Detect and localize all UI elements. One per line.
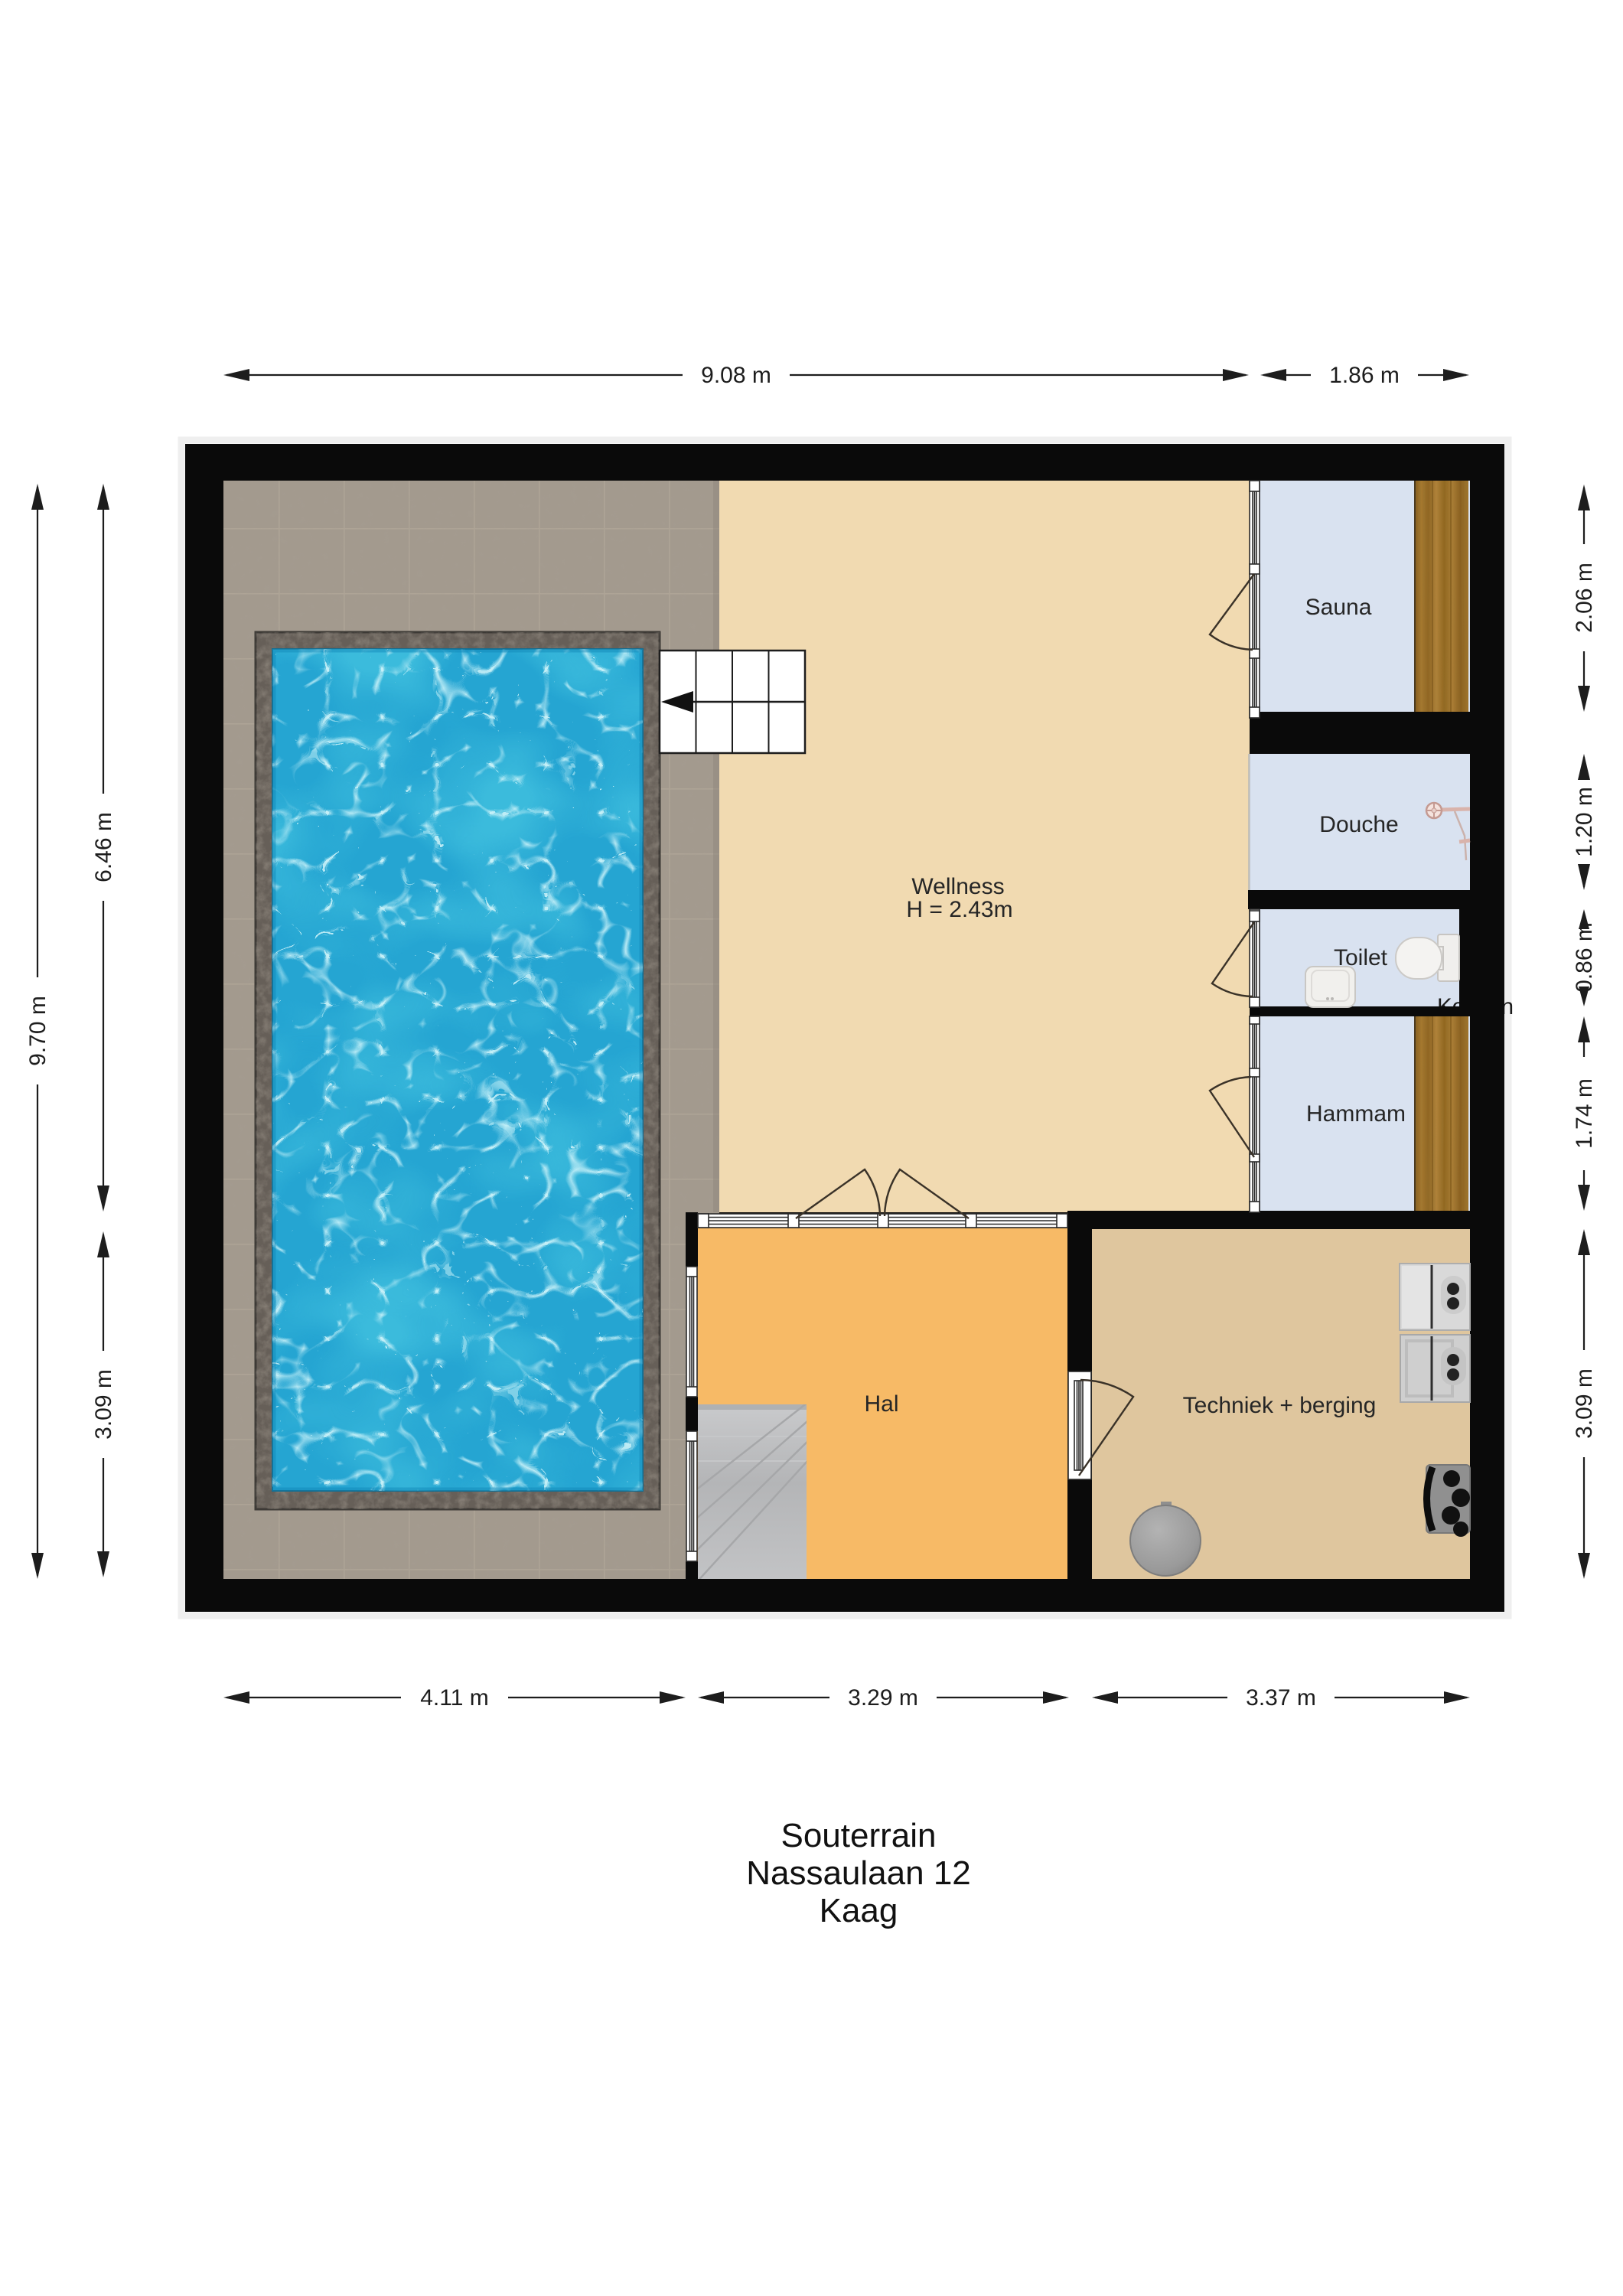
svg-text:1.86 m: 1.86 m — [1329, 363, 1400, 388]
svg-text:Douche: Douche — [1319, 812, 1398, 837]
svg-text:Hal: Hal — [864, 1391, 898, 1417]
svg-text:4.11 m: 4.11 m — [420, 1685, 489, 1711]
svg-text:3.09 m: 3.09 m — [91, 1369, 116, 1440]
svg-text:6.46 m: 6.46 m — [91, 812, 116, 882]
svg-text:Kaag: Kaag — [820, 1892, 898, 1929]
svg-text:1.74 m: 1.74 m — [1572, 1078, 1597, 1149]
svg-text:9.70 m: 9.70 m — [25, 996, 51, 1066]
svg-text:3.37 m: 3.37 m — [1246, 1685, 1316, 1711]
svg-text:0.86 m: 0.86 m — [1572, 922, 1597, 993]
svg-text:9.08 m: 9.08 m — [701, 363, 771, 388]
svg-text:Toilet: Toilet — [1334, 945, 1388, 970]
svg-text:Hammam: Hammam — [1306, 1101, 1406, 1127]
svg-text:2.06 m: 2.06 m — [1572, 563, 1597, 633]
svg-text:Wellness: Wellness — [911, 874, 1004, 899]
svg-text:3.29 m: 3.29 m — [848, 1685, 918, 1711]
svg-text:1.20 m: 1.20 m — [1572, 787, 1597, 857]
svg-text:Souterrain: Souterrain — [781, 1817, 936, 1854]
svg-text:Techniek + berging: Techniek + berging — [1183, 1393, 1377, 1418]
svg-text:3.09 m: 3.09 m — [1572, 1368, 1597, 1439]
svg-text:H = 2.43m: H = 2.43m — [906, 897, 1012, 922]
svg-text:Sauna: Sauna — [1305, 595, 1372, 620]
svg-text:Nassaulaan 12: Nassaulaan 12 — [746, 1854, 971, 1892]
